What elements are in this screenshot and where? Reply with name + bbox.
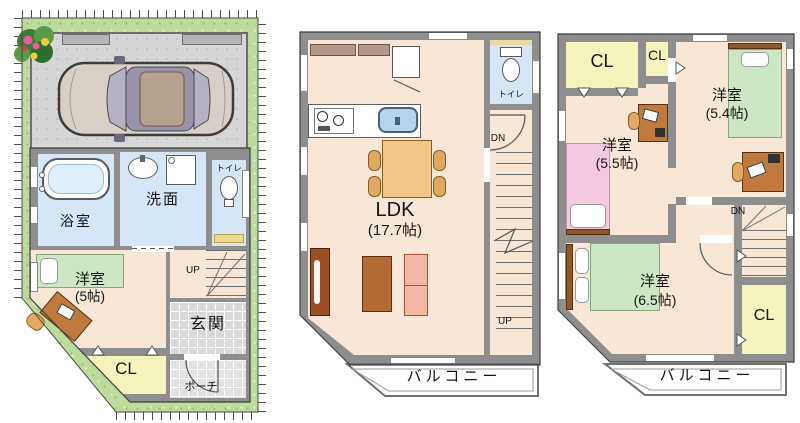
stairs-dn-label: DN — [725, 207, 751, 218]
door-mark — [676, 62, 685, 74]
cabinet-door-line — [394, 80, 420, 92]
closet-label: CL — [96, 360, 156, 378]
porch-label: ポーチ — [170, 382, 232, 394]
ldk-size: (17.7帖) — [330, 223, 460, 239]
closet-door-mark — [146, 346, 158, 355]
closet3-label: CL — [742, 308, 786, 325]
toilet-label: トイレ — [212, 164, 246, 173]
closet-door-mark — [737, 250, 746, 262]
closet1-label: CL — [566, 52, 638, 71]
stairs-up-label: UP — [182, 266, 204, 277]
bedroom54-label: 洋室 — [677, 88, 777, 104]
closet-door-mark — [92, 346, 104, 355]
floor-plan-canvas: 浴室 洗面 トイレ 洋室 (5帖) CL 玄関 ポーチ UP トイレ LDK (… — [0, 0, 800, 423]
stair-break-line — [494, 229, 533, 253]
closet-door-mark — [737, 334, 746, 346]
bedroom54-size: (5.4帖) — [677, 106, 777, 121]
bedroom55-size: (5.5帖) — [567, 156, 667, 171]
bedroom55-label: 洋室 — [567, 138, 667, 154]
bedroom65-label: 洋室 — [600, 274, 710, 290]
closet-door-mark — [578, 88, 590, 97]
balcony2-label: バルコニー — [374, 369, 534, 385]
bathroom-label: 浴室 — [40, 214, 112, 229]
ldk-label: LDK — [330, 200, 460, 221]
entrance-label: 玄関 — [172, 317, 244, 334]
stairs-up-label: UP — [493, 317, 517, 328]
bedroom5-size: (5帖) — [40, 290, 140, 304]
bedroom-door-arc — [700, 243, 732, 275]
closet-door-mark — [616, 88, 628, 97]
washroom-label: 洗面 — [122, 192, 204, 208]
stairs-dn-label: DN — [486, 134, 510, 145]
stair-winder-lines — [207, 252, 245, 296]
bedroom65-size: (6.5帖) — [600, 293, 710, 308]
toilet2-label: トイレ — [490, 90, 532, 99]
closet2-label: CL — [644, 48, 670, 63]
balcony3-label: バルコニー — [627, 368, 787, 384]
bedroom5-label: 洋室 — [40, 272, 140, 288]
